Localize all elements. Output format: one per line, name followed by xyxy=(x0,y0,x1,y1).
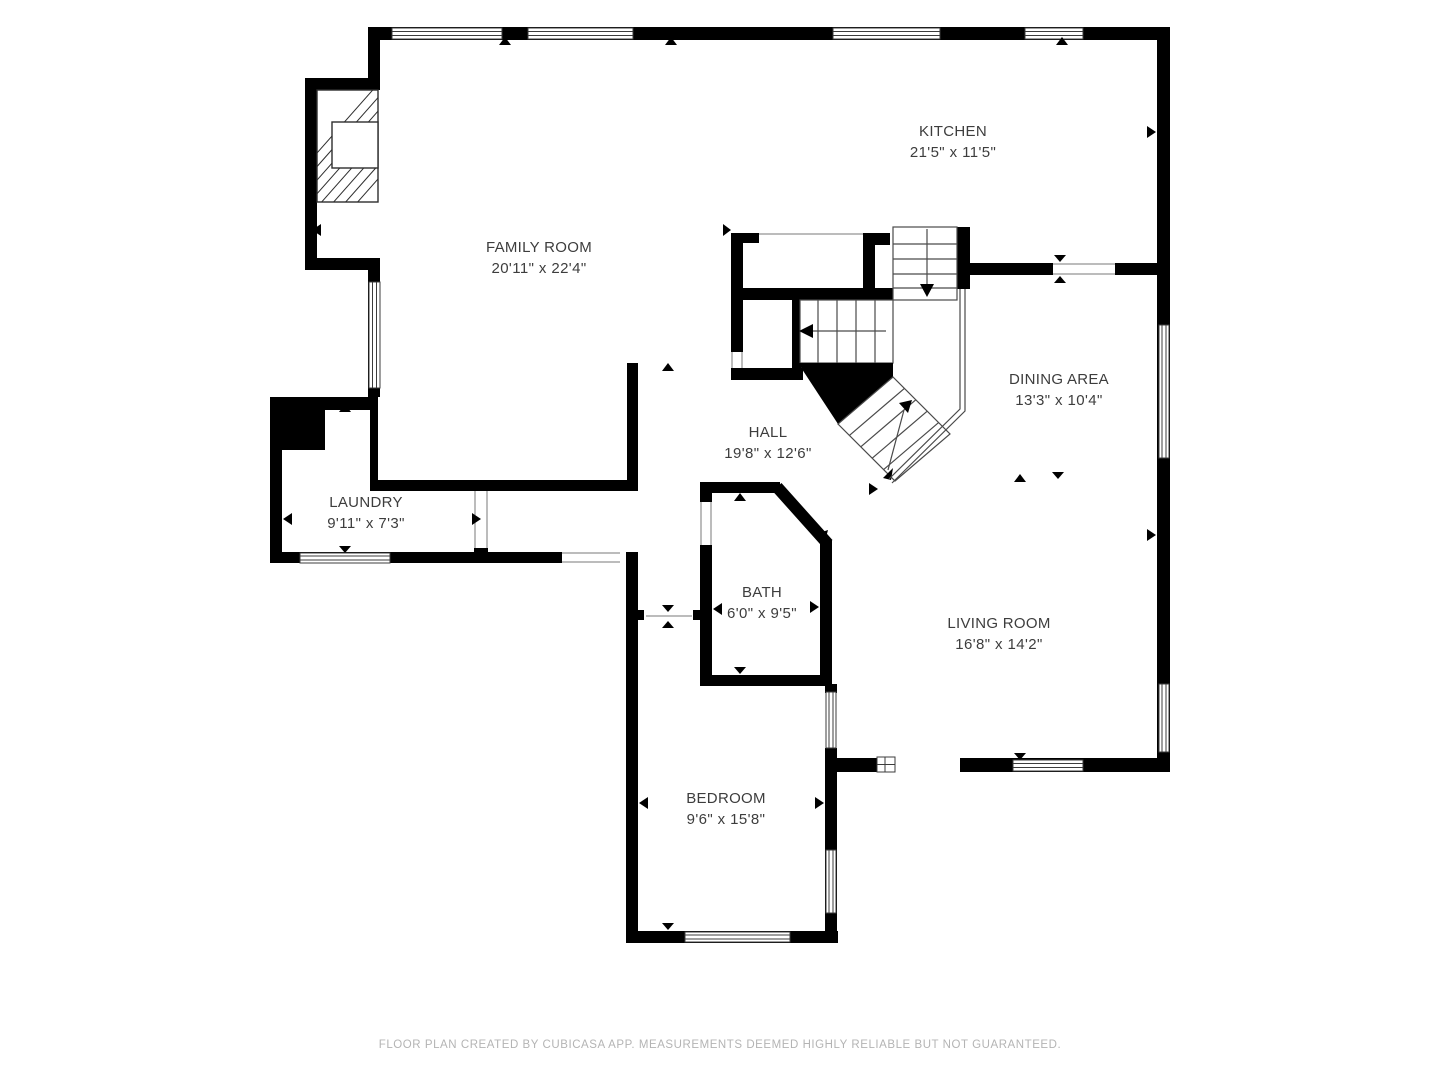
door-marker-icon xyxy=(1147,126,1156,138)
room-dimensions: 6'0" x 9'5" xyxy=(727,603,797,624)
floor-plan-page: FAMILY ROOM 20'11" x 22'4" KITCHEN 21'5"… xyxy=(0,0,1440,1080)
wall-kitchen-dining-right xyxy=(1115,263,1157,275)
room-name: BEDROOM xyxy=(686,788,766,809)
door-marker-icon xyxy=(662,923,674,930)
wall-family-south xyxy=(370,480,638,491)
door-marker-icon xyxy=(815,797,824,809)
door-marker-icon xyxy=(339,546,351,553)
room-name: BATH xyxy=(727,582,797,603)
room-dimensions: 20'11" x 22'4" xyxy=(486,258,592,279)
door-marker-icon xyxy=(639,797,648,809)
room-name: FAMILY ROOM xyxy=(486,237,592,258)
room-dimensions: 21'5" x 11'5" xyxy=(910,142,996,163)
wall-hallway-door-nub-west xyxy=(637,610,644,620)
window-living-south xyxy=(1013,760,1083,771)
door-marker-icon xyxy=(283,513,292,525)
room-label-kitchen: KITCHEN 21'5" x 11'5" xyxy=(910,121,996,163)
window-stub-fixture xyxy=(877,757,895,772)
room-label-dining-area: DINING AREA 13'3" x 10'4" xyxy=(1009,369,1109,411)
room-label-living-room: LIVING ROOM 16'8" x 14'2" xyxy=(947,613,1050,655)
door-marker-icon xyxy=(810,601,819,613)
wall-bedroom-east xyxy=(825,748,837,943)
window-living-west xyxy=(826,692,836,748)
window-family-west xyxy=(369,282,380,388)
wall-stair-landing-south xyxy=(731,368,803,380)
room-name: LAUNDRY xyxy=(327,492,405,513)
wall-laundry-east-connector xyxy=(370,397,378,491)
floor-plan-drawing xyxy=(0,0,1440,1080)
door-marker-icon xyxy=(734,493,746,501)
fireplace xyxy=(271,75,470,205)
wall-stub-south xyxy=(837,758,877,772)
window-bedroom-east xyxy=(826,850,836,913)
wall-closet-south xyxy=(731,288,893,300)
stair-flight-upper xyxy=(893,227,957,300)
wall-bath-west-lower xyxy=(700,545,712,686)
wall-closet-top-left xyxy=(731,233,759,243)
fireplace-firebox xyxy=(332,122,378,168)
room-dimensions: 16'8" x 14'2" xyxy=(947,634,1050,655)
wall-bedroom-west xyxy=(626,552,638,943)
room-label-bedroom: BEDROOM 9'6" x 15'8" xyxy=(686,788,766,830)
wall-kitchen-dining-left xyxy=(957,263,1053,275)
wall-family-east xyxy=(627,363,638,491)
wall-stair-east xyxy=(957,227,970,289)
room-label-family-room: FAMILY ROOM 20'11" x 22'4" xyxy=(486,237,592,279)
staircase xyxy=(798,227,965,483)
window-family-top-2 xyxy=(528,28,633,39)
wall-bath-south xyxy=(700,675,832,686)
door-marker-icon xyxy=(662,605,674,612)
window-living-east xyxy=(1159,684,1169,752)
wall-bath-diagonal xyxy=(777,487,828,544)
room-label-laundry: LAUNDRY 9'11" x 7'3" xyxy=(327,492,405,534)
window-kitchen-top-1 xyxy=(833,28,940,39)
door-marker-icon xyxy=(1052,472,1064,479)
wall-bath-east xyxy=(820,540,832,686)
room-dimensions: 9'6" x 15'8" xyxy=(686,809,766,830)
room-name: HALL xyxy=(724,422,811,443)
room-dimensions: 9'11" x 7'3" xyxy=(327,513,405,534)
room-label-bath: BATH 6'0" x 9'5" xyxy=(727,582,797,624)
door-marker-icon xyxy=(734,667,746,674)
window-family-top-1 xyxy=(392,28,502,39)
stair-flight-middle xyxy=(799,300,893,363)
door-marker-icon xyxy=(723,224,731,236)
wall-bath-west-upper xyxy=(700,482,712,502)
room-name: LIVING ROOM xyxy=(947,613,1050,634)
room-name: DINING AREA xyxy=(1009,369,1109,390)
door-marker-icon xyxy=(1054,276,1066,283)
door-marker-icon xyxy=(869,483,878,495)
wall-hallway-door-nub-east xyxy=(693,610,701,620)
door-marker-icon xyxy=(662,363,674,371)
window-laundry-south xyxy=(300,553,390,563)
wall-bump-west xyxy=(305,78,317,270)
window-kitchen-top-2 xyxy=(1025,28,1083,39)
room-label-hall: HALL 19'8" x 12'6" xyxy=(724,422,811,464)
room-name: KITCHEN xyxy=(910,121,996,142)
door-marker-icon xyxy=(1054,255,1066,262)
wall-laundry-west xyxy=(270,397,282,563)
door-marker-icon xyxy=(472,513,481,525)
door-marker-icon xyxy=(1014,474,1026,482)
wall-laundry-door-cap xyxy=(474,548,488,563)
window-dining-east xyxy=(1159,325,1169,458)
room-dimensions: 13'3" x 10'4" xyxy=(1009,390,1109,411)
footer-disclaimer: FLOOR PLAN CREATED BY CUBICASA APP. MEAS… xyxy=(0,1039,1440,1051)
door-marker-icon xyxy=(662,621,674,628)
door-marker-icon xyxy=(1147,529,1156,541)
window-bedroom-south xyxy=(685,932,790,942)
door-marker-icon xyxy=(713,603,722,615)
room-dimensions: 19'8" x 12'6" xyxy=(724,443,811,464)
